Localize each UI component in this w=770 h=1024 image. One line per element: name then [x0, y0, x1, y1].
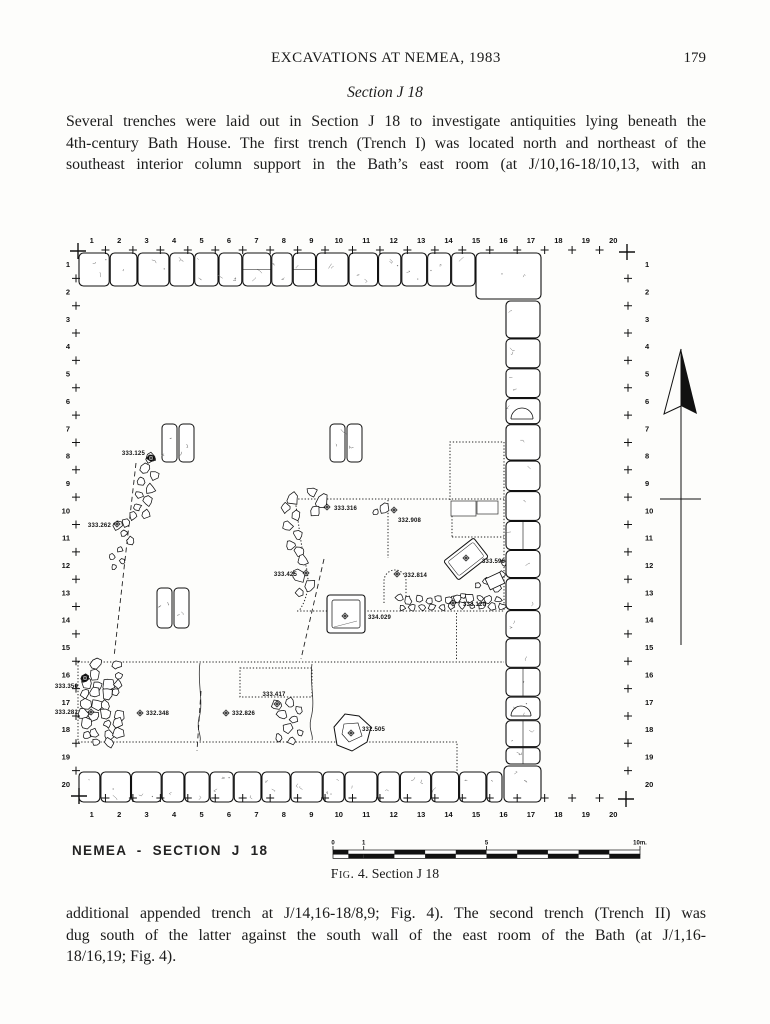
elevation-label: 332.908: [398, 518, 422, 524]
page-number: 179: [684, 50, 707, 67]
wall-block: [272, 253, 292, 286]
elevation-marker: [137, 710, 144, 717]
stone: [287, 541, 296, 550]
grid-label-right: 8: [645, 452, 649, 461]
stone: [289, 716, 298, 723]
wall-block: [234, 772, 261, 802]
wall-block: [506, 369, 540, 398]
grid-label-right: 1: [645, 260, 649, 269]
grid-label-right: 3: [645, 315, 649, 324]
grid-cross: [624, 657, 632, 665]
grid-label-bottom: 20: [609, 810, 617, 819]
stone: [286, 697, 294, 707]
grid-label-right: 18: [645, 725, 653, 734]
grid-cross: [72, 603, 80, 611]
elevation-label: 333.350: [55, 684, 79, 690]
wall-block: [379, 253, 401, 286]
grid-cross: [72, 630, 80, 638]
grid-label-bottom: 1: [90, 810, 94, 819]
grid-label-right: 19: [645, 752, 653, 761]
stone: [113, 727, 125, 738]
grid-cross: [624, 712, 632, 720]
grid-label-right: 6: [645, 397, 649, 406]
wall-block: [506, 399, 540, 424]
stone: [405, 596, 412, 604]
stone: [81, 698, 92, 709]
grid-cross: [624, 521, 632, 529]
wall-block: [506, 550, 540, 577]
grid-cross: [624, 493, 632, 501]
grid-label-top: 4: [172, 236, 177, 245]
grid-label-bottom: 7: [254, 810, 258, 819]
stone: [140, 463, 150, 473]
grid-cross: [72, 739, 80, 747]
wall-block: [506, 492, 540, 521]
wall-block: [138, 253, 169, 286]
stone: [112, 689, 119, 696]
figure-caption-text: 4. Section J 18: [354, 866, 439, 881]
paragraph-line: dug south of the latter against the sout…: [66, 925, 706, 947]
grid-label-right: 12: [645, 561, 653, 570]
wall-block: [402, 253, 427, 286]
dashed-line: [114, 463, 136, 657]
grid-cross: [624, 685, 632, 693]
column-base: [162, 424, 177, 462]
stone: [90, 658, 102, 669]
stone: [439, 605, 445, 611]
grid-label-top: 17: [527, 236, 535, 245]
stone: [127, 536, 134, 545]
wall-block: [79, 772, 100, 802]
grid-label-top: 14: [444, 236, 453, 245]
elevation-marker: [223, 710, 230, 717]
grid-cross: [72, 384, 80, 392]
features: [157, 424, 505, 751]
stone: [276, 710, 287, 718]
column-base: [179, 424, 194, 462]
stone: [117, 547, 123, 552]
grid-label-left: 17: [62, 698, 70, 707]
stone: [90, 669, 99, 680]
grid-label-bottom: 6: [227, 810, 231, 819]
wall-block: [476, 253, 541, 299]
running-title: EXCAVATIONS AT NEMEA, 1983: [271, 50, 501, 66]
wall-block: [506, 339, 540, 368]
grid-label-right: 15: [645, 643, 653, 652]
elevation-marker: [394, 571, 401, 578]
stone: [296, 706, 303, 714]
grid-label-top: 8: [282, 236, 286, 245]
wall-block: [506, 301, 540, 338]
grid-label-top: 16: [499, 236, 507, 245]
stone: [276, 734, 282, 743]
stone: [112, 565, 116, 570]
stone: [283, 724, 293, 734]
elevation-label: 333.316: [334, 506, 358, 512]
stone: [146, 483, 155, 493]
elevation-label: 332.348: [146, 711, 170, 717]
grid-label-bottom: 4: [172, 810, 177, 819]
stone: [287, 492, 298, 505]
stone: [380, 503, 389, 513]
grid-label-top: 1: [90, 236, 94, 245]
grid-cross: [624, 329, 632, 337]
grid-label-left: 9: [66, 479, 70, 488]
stone: [110, 553, 116, 559]
grid-cross: [624, 302, 632, 310]
stone: [119, 559, 125, 564]
stone: [305, 581, 315, 592]
grid-label-top: 5: [199, 236, 203, 245]
stone: [298, 554, 309, 565]
grid-label-left: 13: [62, 588, 70, 597]
stone: [499, 603, 506, 609]
grid-label-left: 18: [62, 725, 70, 734]
grid-cross: [541, 794, 549, 802]
stone: [426, 598, 432, 604]
stone: [135, 492, 143, 499]
stone: [115, 672, 122, 679]
elevation-label: 334.029: [368, 615, 392, 621]
wall-block: [162, 772, 184, 802]
wall-block: [506, 425, 540, 460]
elevation-label: 333.425: [274, 572, 298, 578]
grid-label-left: 8: [66, 452, 70, 461]
stone-clusters: [78, 452, 506, 748]
wall-block: [195, 253, 218, 286]
grid-label-bottom: 14: [444, 810, 453, 819]
grid-label-bottom: 13: [417, 810, 425, 819]
grid-label-right: 17: [645, 698, 653, 707]
wall-block: [317, 253, 349, 286]
paragraph-line: 18/16,19; Fig. 4).: [66, 946, 706, 968]
grid-cross: [624, 575, 632, 583]
grid-cross: [619, 244, 635, 260]
grid-label-left: 20: [62, 780, 70, 789]
grid-label-bottom: 9: [309, 810, 313, 819]
grid-label-bottom: 19: [582, 810, 590, 819]
grid-label-right: 7: [645, 424, 649, 433]
journal-page: 333.125333.262333.316332.908333.425332.8…: [0, 0, 770, 1024]
wall-block: [219, 253, 242, 286]
stone: [113, 717, 123, 728]
grid-label-bottom: 15: [472, 810, 480, 819]
grid-label-right: 20: [645, 780, 653, 789]
column-base: [174, 588, 189, 628]
stone: [90, 687, 100, 697]
wall-block: [506, 579, 540, 610]
elevation-label: 332.814: [404, 573, 428, 579]
grid-label-top: 13: [417, 236, 425, 245]
grid-label-top: 2: [117, 236, 121, 245]
stone: [143, 496, 153, 507]
wall-block: [506, 639, 540, 668]
grid-label-left: 6: [66, 397, 70, 406]
stone: [80, 690, 88, 700]
grid-label-left: 11: [62, 534, 70, 543]
wall-block: [79, 253, 109, 286]
elevation-label: 332.826: [232, 711, 256, 717]
paragraph-line: Several trenches were laid out in Sectio…: [66, 111, 706, 133]
stone: [100, 709, 110, 719]
grid-cross: [72, 302, 80, 310]
grid-cross: [624, 384, 632, 392]
grid-cross: [624, 274, 632, 282]
grid-label-top: 9: [309, 236, 313, 245]
grid-cross: [72, 548, 80, 556]
grid-label-right: 10: [645, 506, 653, 515]
grid-label-right: 2: [645, 288, 649, 297]
column-base: [347, 424, 362, 462]
figure-caption-label: Fig.: [331, 866, 355, 881]
stone: [93, 739, 100, 745]
stone: [428, 604, 436, 610]
grid-label-bottom: 5: [199, 810, 203, 819]
grid-label-bottom: 12: [390, 810, 398, 819]
grid-cross: [541, 246, 549, 254]
stone: [287, 737, 295, 745]
scale-tick-label: 10m.: [633, 841, 647, 847]
stone: [295, 588, 303, 597]
scale-bar: 01510m.: [331, 841, 647, 859]
grid-label-bottom: 2: [117, 810, 121, 819]
grid-label-bottom: 17: [527, 810, 535, 819]
grid-label-top: 11: [362, 236, 370, 245]
elevation-points: 333.125333.262333.316332.908333.425332.8…: [55, 451, 506, 736]
stone: [134, 504, 142, 511]
stone: [307, 488, 317, 497]
grid-label-left: 10: [62, 506, 70, 515]
grid-cross: [72, 521, 80, 529]
grid-cross: [72, 657, 80, 665]
grid-cross: [72, 329, 80, 337]
section-heading: Section J 18: [0, 84, 770, 102]
stone: [292, 510, 300, 521]
stone: [435, 596, 442, 602]
stone: [104, 738, 113, 749]
grid-cross: [624, 356, 632, 364]
grid-label-left: 4: [66, 342, 71, 351]
grid-cross: [624, 548, 632, 556]
wall-block: [452, 253, 475, 286]
small-block: [451, 501, 476, 516]
wall-block: [349, 253, 378, 286]
grid-label-bottom: 3: [145, 810, 149, 819]
scale-tick-label: 1: [362, 841, 366, 847]
scale-tick-label: 5: [485, 841, 489, 847]
grid-label-bottom: 18: [554, 810, 562, 819]
grid-label-left: 5: [66, 370, 70, 379]
elevation-label: 333.417: [262, 692, 286, 698]
stone: [495, 597, 503, 602]
paragraph-line: additional appended trench at J/14,16-18…: [66, 903, 706, 925]
elevation-label: 333.598: [482, 559, 506, 565]
stone: [121, 530, 127, 536]
elevation-marker: [391, 507, 398, 514]
grid-label-top: 18: [554, 236, 562, 245]
grid-label-top: 19: [582, 236, 590, 245]
stone: [416, 595, 423, 602]
wall-block: [170, 253, 194, 286]
grid-label-left: 1: [66, 260, 70, 269]
elevation-label: 333.262: [88, 523, 112, 529]
grid-label-right: 5: [645, 370, 649, 379]
grid-cross: [624, 438, 632, 446]
grid-cross: [624, 466, 632, 474]
stone: [477, 596, 483, 602]
grid-label-top: 10: [335, 236, 343, 245]
wall-block: [504, 766, 541, 802]
wall-blocks: [79, 253, 541, 802]
dashed-lines: [114, 463, 324, 751]
wall-block: [428, 253, 451, 286]
grid-cross: [618, 791, 634, 807]
stone: [400, 605, 406, 610]
grid-label-bottom: 11: [362, 810, 370, 819]
grid-cross: [72, 438, 80, 446]
grid-label-left: 12: [62, 561, 70, 570]
paragraph-bottom: additional appended trench at J/14,16-18…: [66, 903, 706, 968]
grid-label-bottom: 8: [282, 810, 286, 819]
grid-label-left: 15: [62, 643, 70, 652]
grid-cross: [624, 411, 632, 419]
grid-label-bottom: 10: [335, 810, 343, 819]
grid-label-top: 3: [145, 236, 149, 245]
grid-label-right: 9: [645, 479, 649, 488]
grid-label-right: 13: [645, 588, 653, 597]
grid-cross: [624, 739, 632, 747]
grid-label-left: 2: [66, 288, 70, 297]
north-arrow: [660, 349, 701, 645]
grid-label-bottom: 16: [499, 810, 507, 819]
running-header: EXCAVATIONS AT NEMEA, 1983 179: [66, 50, 706, 67]
stone: [281, 502, 290, 513]
figure-caption: Fig. 4. Section J 18: [0, 866, 770, 882]
stone: [150, 472, 159, 481]
grid-label-right: 4: [645, 342, 650, 351]
grid-label-right: 14: [645, 616, 654, 625]
grid-label-right: 11: [645, 534, 653, 543]
elevation-label: 333.120: [463, 602, 487, 608]
grid-cross: [624, 767, 632, 775]
elevation-label: 332.505: [362, 727, 386, 733]
grid-cross: [568, 794, 576, 802]
grid-label-left: 3: [66, 315, 70, 324]
stone: [142, 509, 150, 518]
grid-label-top: 20: [609, 236, 617, 245]
stone: [82, 717, 92, 729]
grid-label-top: 15: [472, 236, 480, 245]
stone: [408, 604, 415, 611]
grid-cross: [72, 575, 80, 583]
grid-cross: [624, 603, 632, 611]
column-base: [157, 588, 172, 628]
grid-label-left: 7: [66, 424, 70, 433]
grid-cross: [624, 630, 632, 638]
scale-tick-label: 0: [331, 841, 335, 847]
stone: [419, 605, 426, 611]
grid-label-right: 16: [645, 670, 653, 679]
stone: [283, 521, 294, 530]
grid-label-top: 12: [390, 236, 398, 245]
stone: [112, 661, 122, 669]
plan-title: NEMEA - SECTION J 18: [72, 843, 268, 858]
grid-label-top: 7: [254, 236, 258, 245]
wall-block: [506, 611, 540, 638]
stone: [297, 730, 303, 736]
grid-cross: [72, 493, 80, 501]
stone: [137, 477, 145, 485]
grid-cross: [72, 411, 80, 419]
stone: [101, 700, 109, 711]
grid-cross: [596, 246, 604, 254]
stone: [373, 509, 378, 515]
grid-cross: [72, 356, 80, 364]
grid-cross: [596, 794, 604, 802]
stone: [103, 720, 111, 728]
paragraph-top: Several trenches were laid out in Sectio…: [66, 111, 706, 176]
stone: [83, 731, 90, 738]
stone: [476, 583, 481, 588]
elevation-label: 333.125: [122, 451, 146, 457]
column-base: [330, 424, 345, 462]
stone: [78, 708, 89, 718]
grid-cross: [568, 246, 576, 254]
grid-cross: [72, 466, 80, 474]
grid-label-left: 14: [62, 616, 71, 625]
stone: [311, 506, 319, 515]
paragraph-line: southeast interior column support in the…: [66, 154, 706, 176]
wall-block: [506, 461, 540, 490]
grid-label-top: 6: [227, 236, 231, 245]
stone: [103, 689, 112, 700]
stone: [90, 728, 99, 737]
elevation-label: 333.281: [55, 710, 79, 716]
stone: [130, 512, 137, 521]
grid-label-left: 16: [62, 670, 70, 679]
small-block: [477, 501, 498, 514]
grid-cross: [72, 767, 80, 775]
paragraph-line: 4th-century Bath House. The first trench…: [66, 133, 706, 155]
grid-label-left: 19: [62, 752, 70, 761]
stone: [395, 594, 403, 601]
